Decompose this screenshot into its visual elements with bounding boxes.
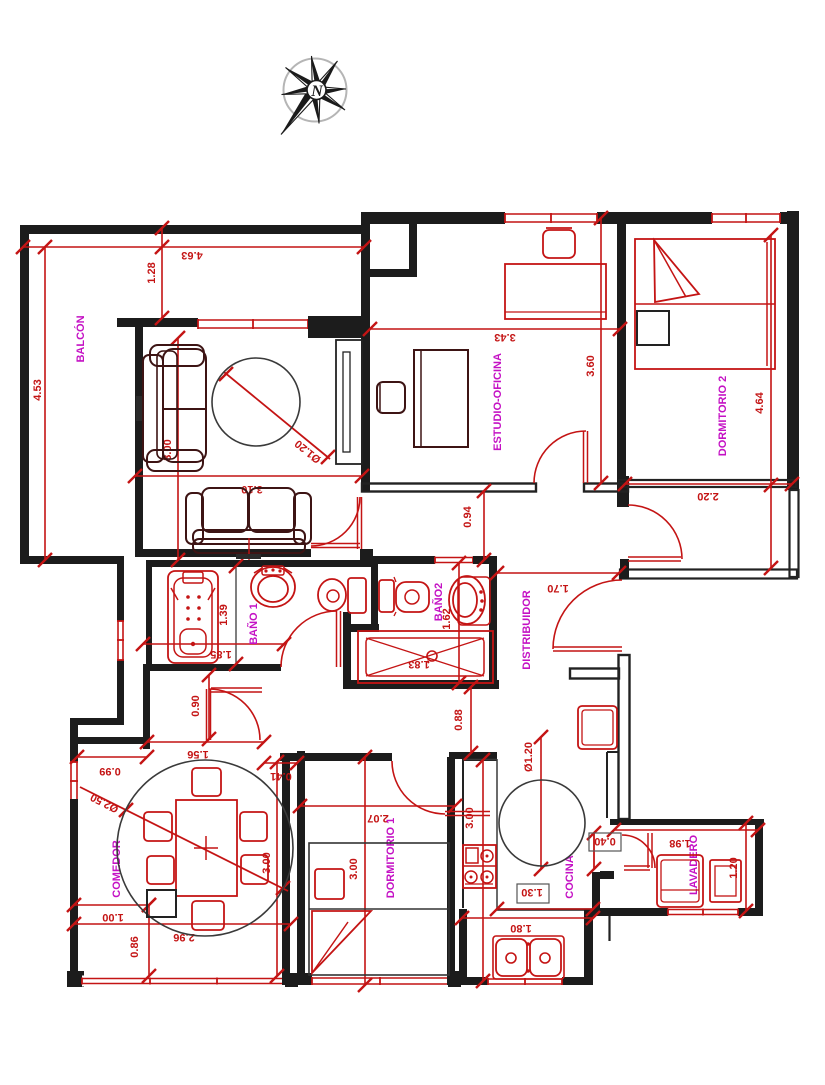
svg-text:DORMITORIO 2: DORMITORIO 2 <box>717 376 729 456</box>
svg-text:3.00: 3.00 <box>348 858 360 879</box>
svg-text:Ø1.20: Ø1.20 <box>523 742 535 772</box>
svg-text:1.00: 1.00 <box>102 911 123 923</box>
svg-text:3.60: 3.60 <box>585 355 597 376</box>
svg-text:BALCÓN: BALCÓN <box>74 315 87 362</box>
svg-text:0.41: 0.41 <box>270 770 291 782</box>
svg-text:0.86: 0.86 <box>129 936 141 957</box>
svg-text:1.39: 1.39 <box>218 604 230 625</box>
svg-text:1.30: 1.30 <box>521 886 542 898</box>
svg-text:1.70: 1.70 <box>547 582 568 594</box>
svg-text:1.28: 1.28 <box>146 262 158 283</box>
svg-text:BAÑO 1: BAÑO 1 <box>247 603 260 645</box>
svg-text:ESTUDIO-OFICINA: ESTUDIO-OFICINA <box>492 353 504 451</box>
svg-text:1.80: 1.80 <box>510 922 531 934</box>
svg-text:0.90: 0.90 <box>190 695 202 716</box>
svg-text:4.64: 4.64 <box>754 391 766 413</box>
svg-text:LAVADERO: LAVADERO <box>688 835 700 896</box>
svg-text:3.43: 3.43 <box>494 331 515 343</box>
svg-text:DISTRIBUIDOR: DISTRIBUIDOR <box>521 590 533 670</box>
svg-text:COCINA: COCINA <box>564 855 576 898</box>
svg-text:1.85: 1.85 <box>210 648 231 660</box>
svg-text:4.63: 4.63 <box>181 249 202 261</box>
svg-text:DORMITORIO 1: DORMITORIO 1 <box>385 818 397 898</box>
svg-text:N: N <box>310 83 324 100</box>
svg-text:0.99: 0.99 <box>99 765 120 777</box>
svg-text:3.00: 3.00 <box>464 807 476 828</box>
svg-text:4.53: 4.53 <box>32 379 44 400</box>
svg-text:2.20: 2.20 <box>697 490 718 502</box>
svg-text:0.40: 0.40 <box>594 835 615 847</box>
svg-text:1.56: 1.56 <box>187 748 208 760</box>
svg-text:0.94: 0.94 <box>462 505 474 527</box>
svg-text:BAÑO2: BAÑO2 <box>432 583 445 622</box>
svg-text:1.83: 1.83 <box>408 658 429 670</box>
svg-text:0.88: 0.88 <box>453 709 465 730</box>
